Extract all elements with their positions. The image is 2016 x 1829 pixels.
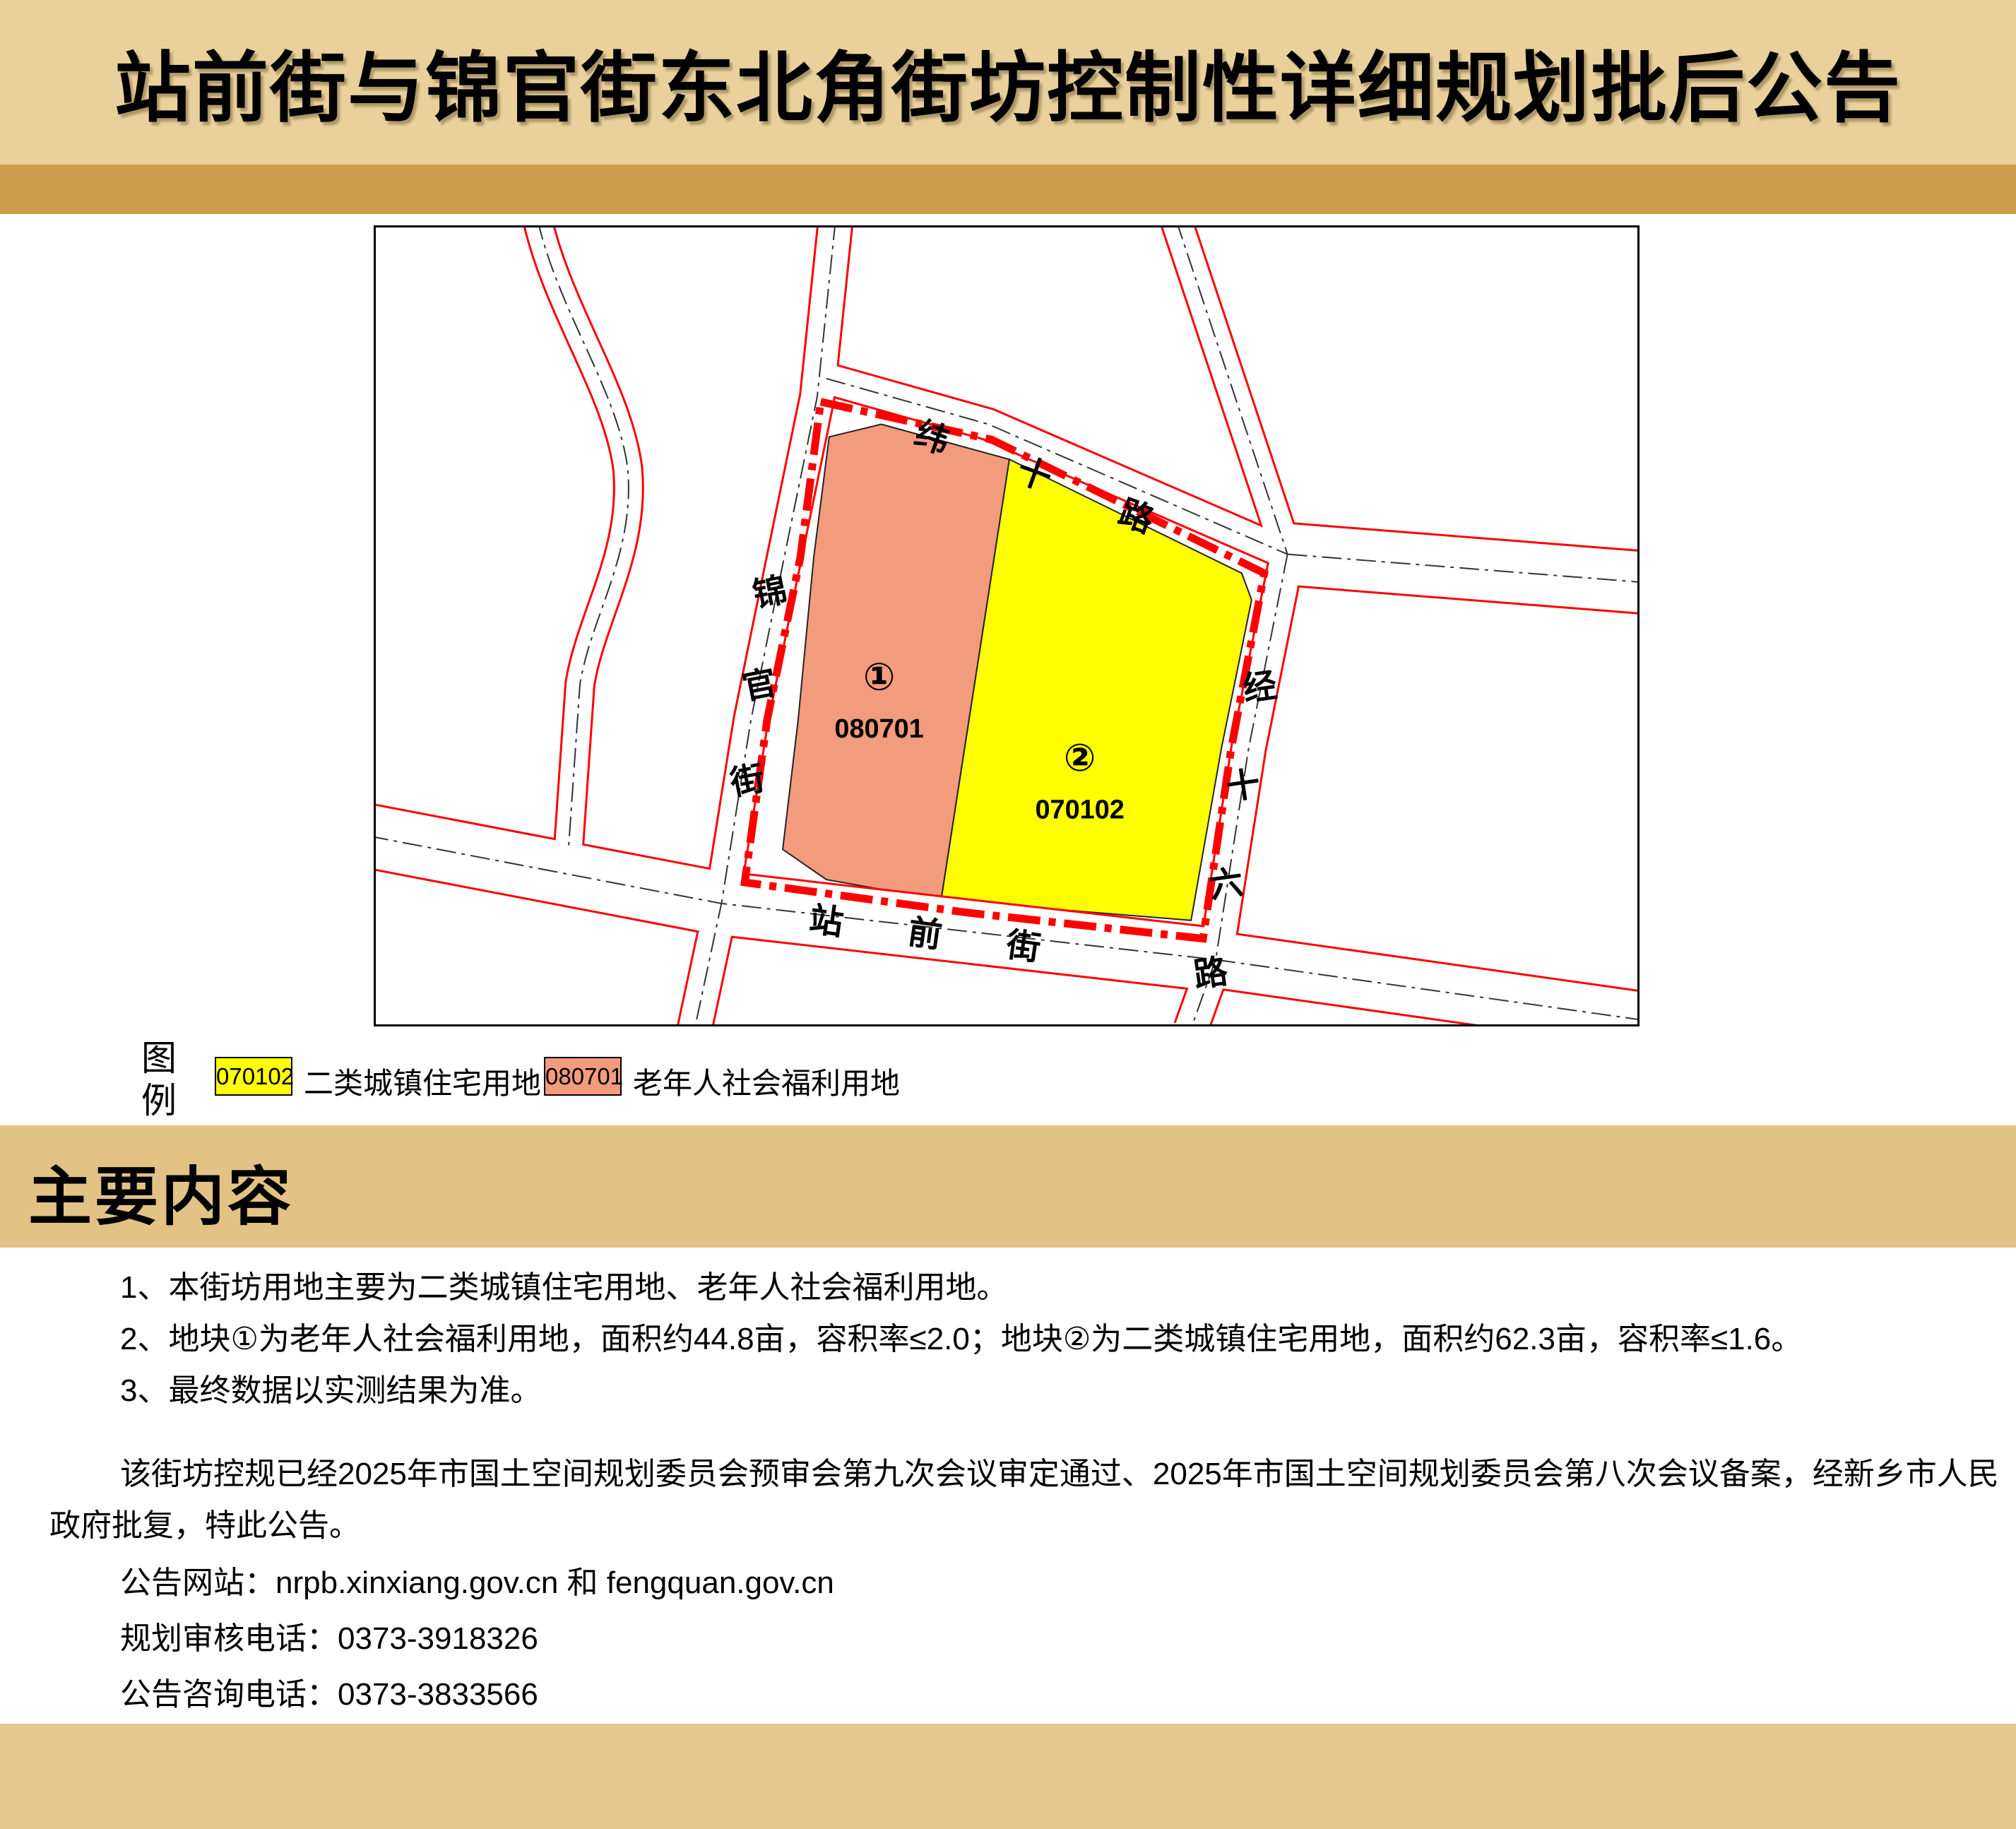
parcel-2-residential-code-label: 070102 xyxy=(1035,795,1124,825)
section-heading: 主要内容 xyxy=(28,1145,294,1237)
legend-swatch-residential: 070102 xyxy=(215,1057,292,1096)
road-label-zhanqian-char-1: 站 xyxy=(807,901,846,942)
legend: 图 例 070102 二类城镇住宅用地 080701 老年人社会福利用地 xyxy=(0,1031,2016,1123)
page-title: 站前街与锦官街东北角街坊控制性详细规划批后公告 xyxy=(0,42,2016,134)
header-band: 站前街与锦官街东北角街坊控制性详细规划批后公告 xyxy=(0,0,2016,165)
legend-heading: 图 例 xyxy=(138,1037,179,1122)
section-band: 主要内容 xyxy=(0,1125,2016,1248)
approval-paragraph: 该街坊控规已经2025年市国土空间规划委员会预审会第九次会议审定通过、2025年… xyxy=(49,1448,2003,1551)
parcel-2-residential-index-label: ② xyxy=(1064,737,1096,779)
road-label-jingshiliu-char-4: 路 xyxy=(1192,953,1231,995)
review-phone-line: 规划审核电话：0373-3918326 xyxy=(49,1613,2003,1664)
website-line: 公告网站：nrpb.xinxiang.gov.cn 和 fengquan.gov… xyxy=(49,1557,2003,1609)
road-label-jinguan-char-2: 官 xyxy=(740,664,780,707)
legend-label-residential: 二类城镇住宅用地 xyxy=(304,1060,541,1103)
road-label-zhanqian-char-2: 前 xyxy=(906,913,944,955)
gold-divider-strip xyxy=(0,165,2016,214)
inquiry-phone-line: 公告咨询电话：0373-3833566 xyxy=(49,1669,2003,1720)
planning-map: ①080701②070102纬十路锦官街经十六路站前街 xyxy=(374,225,1640,1026)
legend-swatch-welfare: 080701 xyxy=(544,1057,622,1096)
road-label-jingshiliu-char-3: 六 xyxy=(1207,864,1246,906)
road-label-jingshiliu-char-2: 十 xyxy=(1224,765,1263,807)
content-item-3: 3、最终数据以实测结果为准。 xyxy=(49,1365,2003,1416)
road-label-jinguan-char-3: 街 xyxy=(727,759,768,803)
footer-band xyxy=(0,1724,2016,1829)
main-content: 1、本街坊用地主要为二类城镇住宅用地、老年人社会福利用地。 2、地块①为老年人社… xyxy=(49,1262,2003,1720)
legend-label-welfare: 老年人社会福利用地 xyxy=(633,1060,900,1103)
parcel-1-welfare-code-label: 080701 xyxy=(834,714,923,744)
road-label-zhanqian-char-3: 街 xyxy=(1004,926,1043,968)
content-item-1: 1、本街坊用地主要为二类城镇住宅用地、老年人社会福利用地。 xyxy=(49,1262,2003,1313)
parcel-1-welfare-index-label: ① xyxy=(863,656,896,699)
curved-road-surface xyxy=(538,227,629,846)
announcement-page: 站前街与锦官街东北角街坊控制性详细规划批后公告 ①080701②070102纬十… xyxy=(0,0,2016,1829)
road-label-jinguan-char-1: 锦 xyxy=(750,572,790,615)
content-item-2: 2、地块①为老年人社会福利用地，面积约44.8亩，容积率≤2.0；地块②为二类城… xyxy=(49,1313,2003,1365)
road-label-jingshiliu-char-1: 经 xyxy=(1240,667,1279,709)
planning-map-svg: ①080701②070102纬十路锦官街经十六路站前街 xyxy=(376,227,1637,1024)
